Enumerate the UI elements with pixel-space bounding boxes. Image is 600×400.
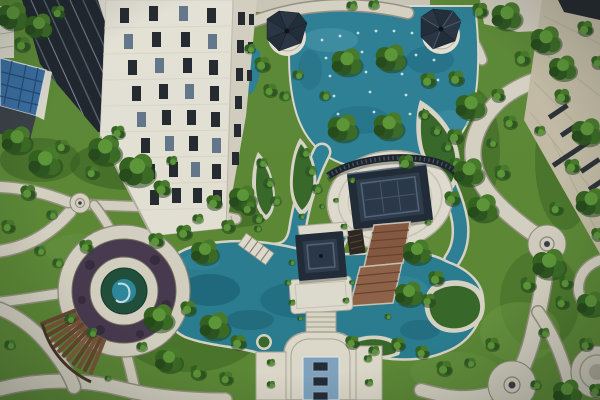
- aerial-courtyard-photo: [0, 0, 600, 400]
- tree: [579, 338, 594, 352]
- shrub: [464, 358, 476, 369]
- shrub: [305, 166, 317, 177]
- tree: [230, 335, 247, 351]
- shrub: [256, 158, 268, 169]
- shrub: [333, 198, 339, 203]
- shrub: [486, 138, 498, 149]
- tree: [415, 346, 430, 360]
- tree: [176, 225, 193, 241]
- tree: [472, 3, 489, 19]
- tree: [559, 276, 574, 290]
- tree: [421, 294, 436, 308]
- gazebo-east: [421, 9, 461, 54]
- tree: [554, 89, 571, 105]
- gazebo-west: [267, 11, 307, 56]
- stair-trellis: [346, 229, 365, 255]
- shrub: [34, 246, 46, 257]
- shrub: [46, 210, 58, 221]
- shrub: [270, 196, 282, 207]
- shrub: [384, 313, 391, 319]
- tree: [428, 271, 445, 287]
- tree: [55, 140, 70, 154]
- shrub: [254, 225, 262, 232]
- shrub: [288, 299, 295, 305]
- tree: [51, 6, 66, 20]
- tree: [577, 21, 594, 37]
- tree: [436, 361, 453, 377]
- photo-frame: [0, 0, 600, 400]
- shrub: [298, 213, 305, 219]
- shrub: [534, 126, 546, 137]
- tree: [111, 126, 126, 140]
- shrub: [319, 204, 325, 209]
- tree: [190, 365, 207, 381]
- shrub: [244, 44, 256, 55]
- shrub: [267, 381, 276, 389]
- teal-cone-sculpture: [112, 279, 136, 303]
- shrub: [340, 223, 347, 229]
- shrub: [299, 148, 311, 159]
- shrub: [64, 314, 76, 325]
- tree: [391, 338, 406, 352]
- shrub: [4, 340, 16, 351]
- path-node-small: [70, 193, 90, 213]
- tree: [14, 37, 31, 53]
- shrub: [368, 0, 380, 11]
- shrub: [86, 328, 98, 339]
- shrub: [267, 359, 276, 367]
- shrub: [297, 316, 303, 321]
- tree: [1, 220, 16, 234]
- tree: [549, 202, 564, 216]
- tree: [254, 57, 271, 73]
- shrub: [319, 91, 331, 102]
- circular-plaza: [58, 225, 190, 357]
- tree: [494, 165, 511, 181]
- shrub: [348, 177, 355, 183]
- tree: [520, 277, 537, 293]
- tree: [85, 166, 100, 180]
- shrub: [418, 110, 430, 121]
- tree: [154, 180, 173, 198]
- tree: [447, 129, 464, 145]
- planter-left: [256, 352, 286, 400]
- fountain-units: [313, 362, 328, 400]
- shrub: [284, 279, 291, 285]
- tree: [514, 51, 531, 67]
- shrub: [364, 355, 373, 363]
- shrub: [530, 380, 542, 391]
- tree: [448, 71, 465, 87]
- tree: [564, 159, 581, 175]
- shrub: [136, 342, 148, 353]
- tree: [491, 89, 506, 103]
- shrub: [263, 178, 275, 189]
- tree: [206, 195, 223, 211]
- shrub: [538, 328, 550, 339]
- tree: [241, 202, 256, 216]
- tree: [572, 118, 600, 147]
- shrub: [166, 156, 178, 167]
- shrub: [430, 126, 442, 137]
- shrub: [346, 1, 358, 12]
- shrub: [311, 184, 323, 195]
- tree: [503, 116, 518, 130]
- tree: [221, 220, 236, 234]
- tree: [20, 185, 37, 201]
- tree: [398, 155, 415, 171]
- tree: [420, 73, 437, 89]
- shrub: [104, 375, 111, 381]
- shrub: [279, 91, 291, 102]
- shrub: [365, 379, 374, 387]
- shrub: [52, 258, 64, 269]
- tree: [263, 84, 278, 98]
- tree: [180, 301, 197, 317]
- shrub: [342, 297, 349, 303]
- tree: [444, 191, 461, 207]
- small-pavilion-roof: [295, 231, 347, 284]
- tree: [555, 296, 570, 310]
- main-pavilion-roof: [347, 164, 434, 232]
- tree: [148, 233, 165, 249]
- shrub: [252, 214, 264, 225]
- pavilion-south-steps: [306, 312, 336, 332]
- tree: [219, 372, 234, 386]
- shrub: [349, 280, 355, 285]
- tree: [79, 240, 94, 254]
- tree: [485, 338, 500, 352]
- shrub: [292, 70, 304, 81]
- tree: [345, 336, 360, 350]
- shrub: [288, 259, 295, 265]
- shrub: [424, 219, 431, 225]
- shrub: [192, 214, 204, 225]
